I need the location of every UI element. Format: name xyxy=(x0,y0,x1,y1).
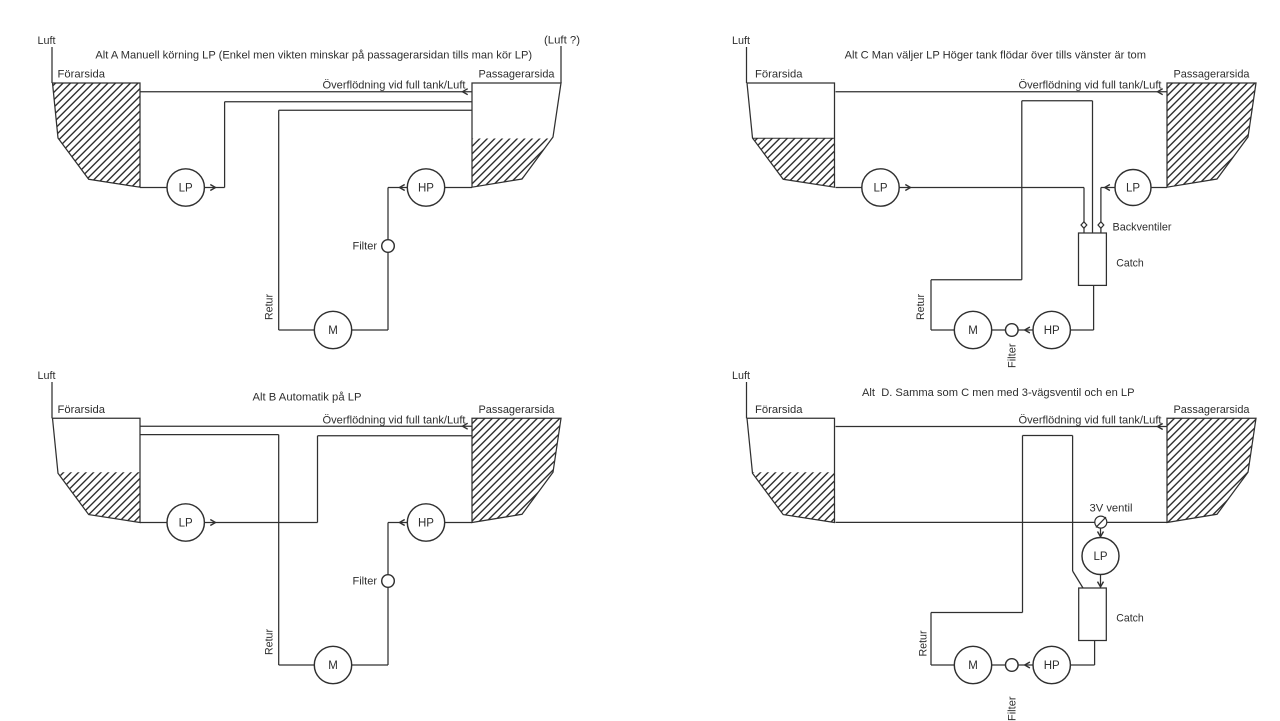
svg-text:LP: LP xyxy=(179,518,193,530)
svg-text:Alt A Manuell körning LP (Enke: Alt A Manuell körning LP (Enkel men vikt… xyxy=(95,50,532,62)
svg-text:Alt C Man väljer LP Höger tank: Alt C Man väljer LP Höger tank flödar öv… xyxy=(845,50,1146,62)
svg-text:Filter: Filter xyxy=(1007,696,1019,721)
svg-text:Retur: Retur xyxy=(918,630,930,656)
svg-text:Alt D. Samma som C men med 3-: Alt D. Samma som C men med 3-vägsventil … xyxy=(862,387,1135,399)
svg-text:LP: LP xyxy=(1093,551,1107,563)
svg-text:LP: LP xyxy=(179,183,193,195)
svg-text:Luft: Luft xyxy=(38,35,56,47)
svg-text:(Luft ?): (Luft ?) xyxy=(544,35,580,47)
svg-text:HP: HP xyxy=(1044,325,1060,337)
svg-text:Filter: Filter xyxy=(1007,343,1019,368)
svg-text:Passagerarsida: Passagerarsida xyxy=(1174,404,1251,416)
svg-text:M: M xyxy=(328,325,338,337)
svg-text:Överflödning vid full tank/Luf: Överflödning vid full tank/Luft xyxy=(1019,414,1162,426)
svg-text:Retur: Retur xyxy=(915,294,927,320)
svg-text:Luft: Luft xyxy=(38,370,56,382)
svg-text:M: M xyxy=(968,660,978,672)
svg-text:Passagerarsida: Passagerarsida xyxy=(479,69,556,81)
svg-text:Luft: Luft xyxy=(732,35,750,47)
svg-text:Retur: Retur xyxy=(263,294,275,320)
svg-text:Förarsida: Förarsida xyxy=(58,69,106,81)
svg-text:Överflödning vid full tank/Luf: Överflödning vid full tank/Luft xyxy=(1019,80,1162,92)
svg-text:M: M xyxy=(968,325,978,337)
svg-text:Förarsida: Förarsida xyxy=(755,404,803,416)
svg-text:3V ventil: 3V ventil xyxy=(1090,503,1133,515)
svg-text:HP: HP xyxy=(418,183,434,195)
svg-text:LP: LP xyxy=(1126,183,1140,195)
svg-text:Alt B Automatik på LP: Alt B Automatik på LP xyxy=(253,392,362,404)
svg-text:Filter: Filter xyxy=(353,576,378,588)
svg-text:Catch: Catch xyxy=(1116,258,1144,270)
svg-text:Förarsida: Förarsida xyxy=(58,404,106,416)
svg-text:Filter: Filter xyxy=(353,241,378,253)
svg-text:M: M xyxy=(328,660,338,672)
svg-text:Catch: Catch xyxy=(1116,613,1144,625)
svg-text:Passagerarsida: Passagerarsida xyxy=(1174,69,1251,81)
svg-text:Passagerarsida: Passagerarsida xyxy=(479,404,556,416)
svg-text:Retur: Retur xyxy=(263,629,275,655)
svg-text:LP: LP xyxy=(873,183,887,195)
svg-text:HP: HP xyxy=(1044,660,1060,672)
svg-text:Backventiler: Backventiler xyxy=(1113,222,1172,234)
svg-text:Förarsida: Förarsida xyxy=(755,69,803,81)
svg-text:HP: HP xyxy=(418,518,434,530)
svg-text:Luft: Luft xyxy=(732,370,750,382)
svg-text:Överflödning vid full tank/Luf: Överflödning vid full tank/Luft xyxy=(323,80,466,92)
svg-text:Överflödning vid full tank/Luf: Överflödning vid full tank/Luft xyxy=(323,414,466,426)
